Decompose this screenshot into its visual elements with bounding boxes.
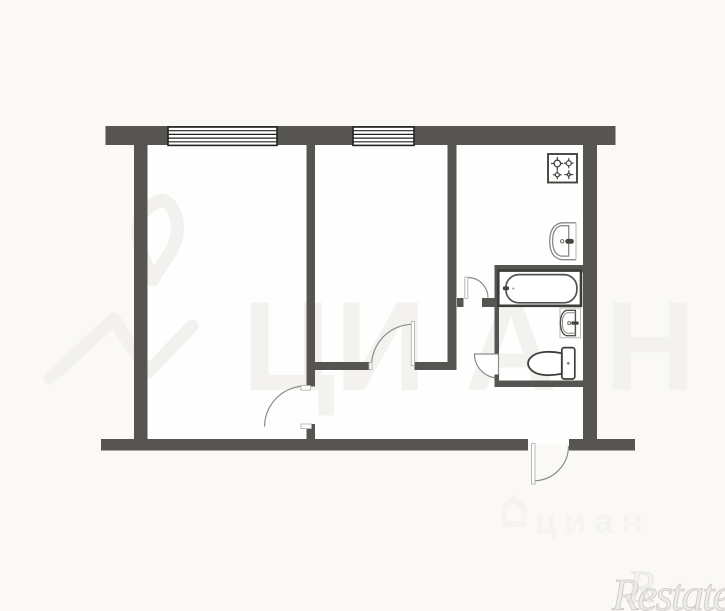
- svg-text:циан: циан: [535, 502, 651, 541]
- svg-text:R: R: [626, 562, 654, 611]
- svg-text:Ц: Ц: [242, 275, 335, 417]
- svg-text:Н: Н: [604, 275, 696, 417]
